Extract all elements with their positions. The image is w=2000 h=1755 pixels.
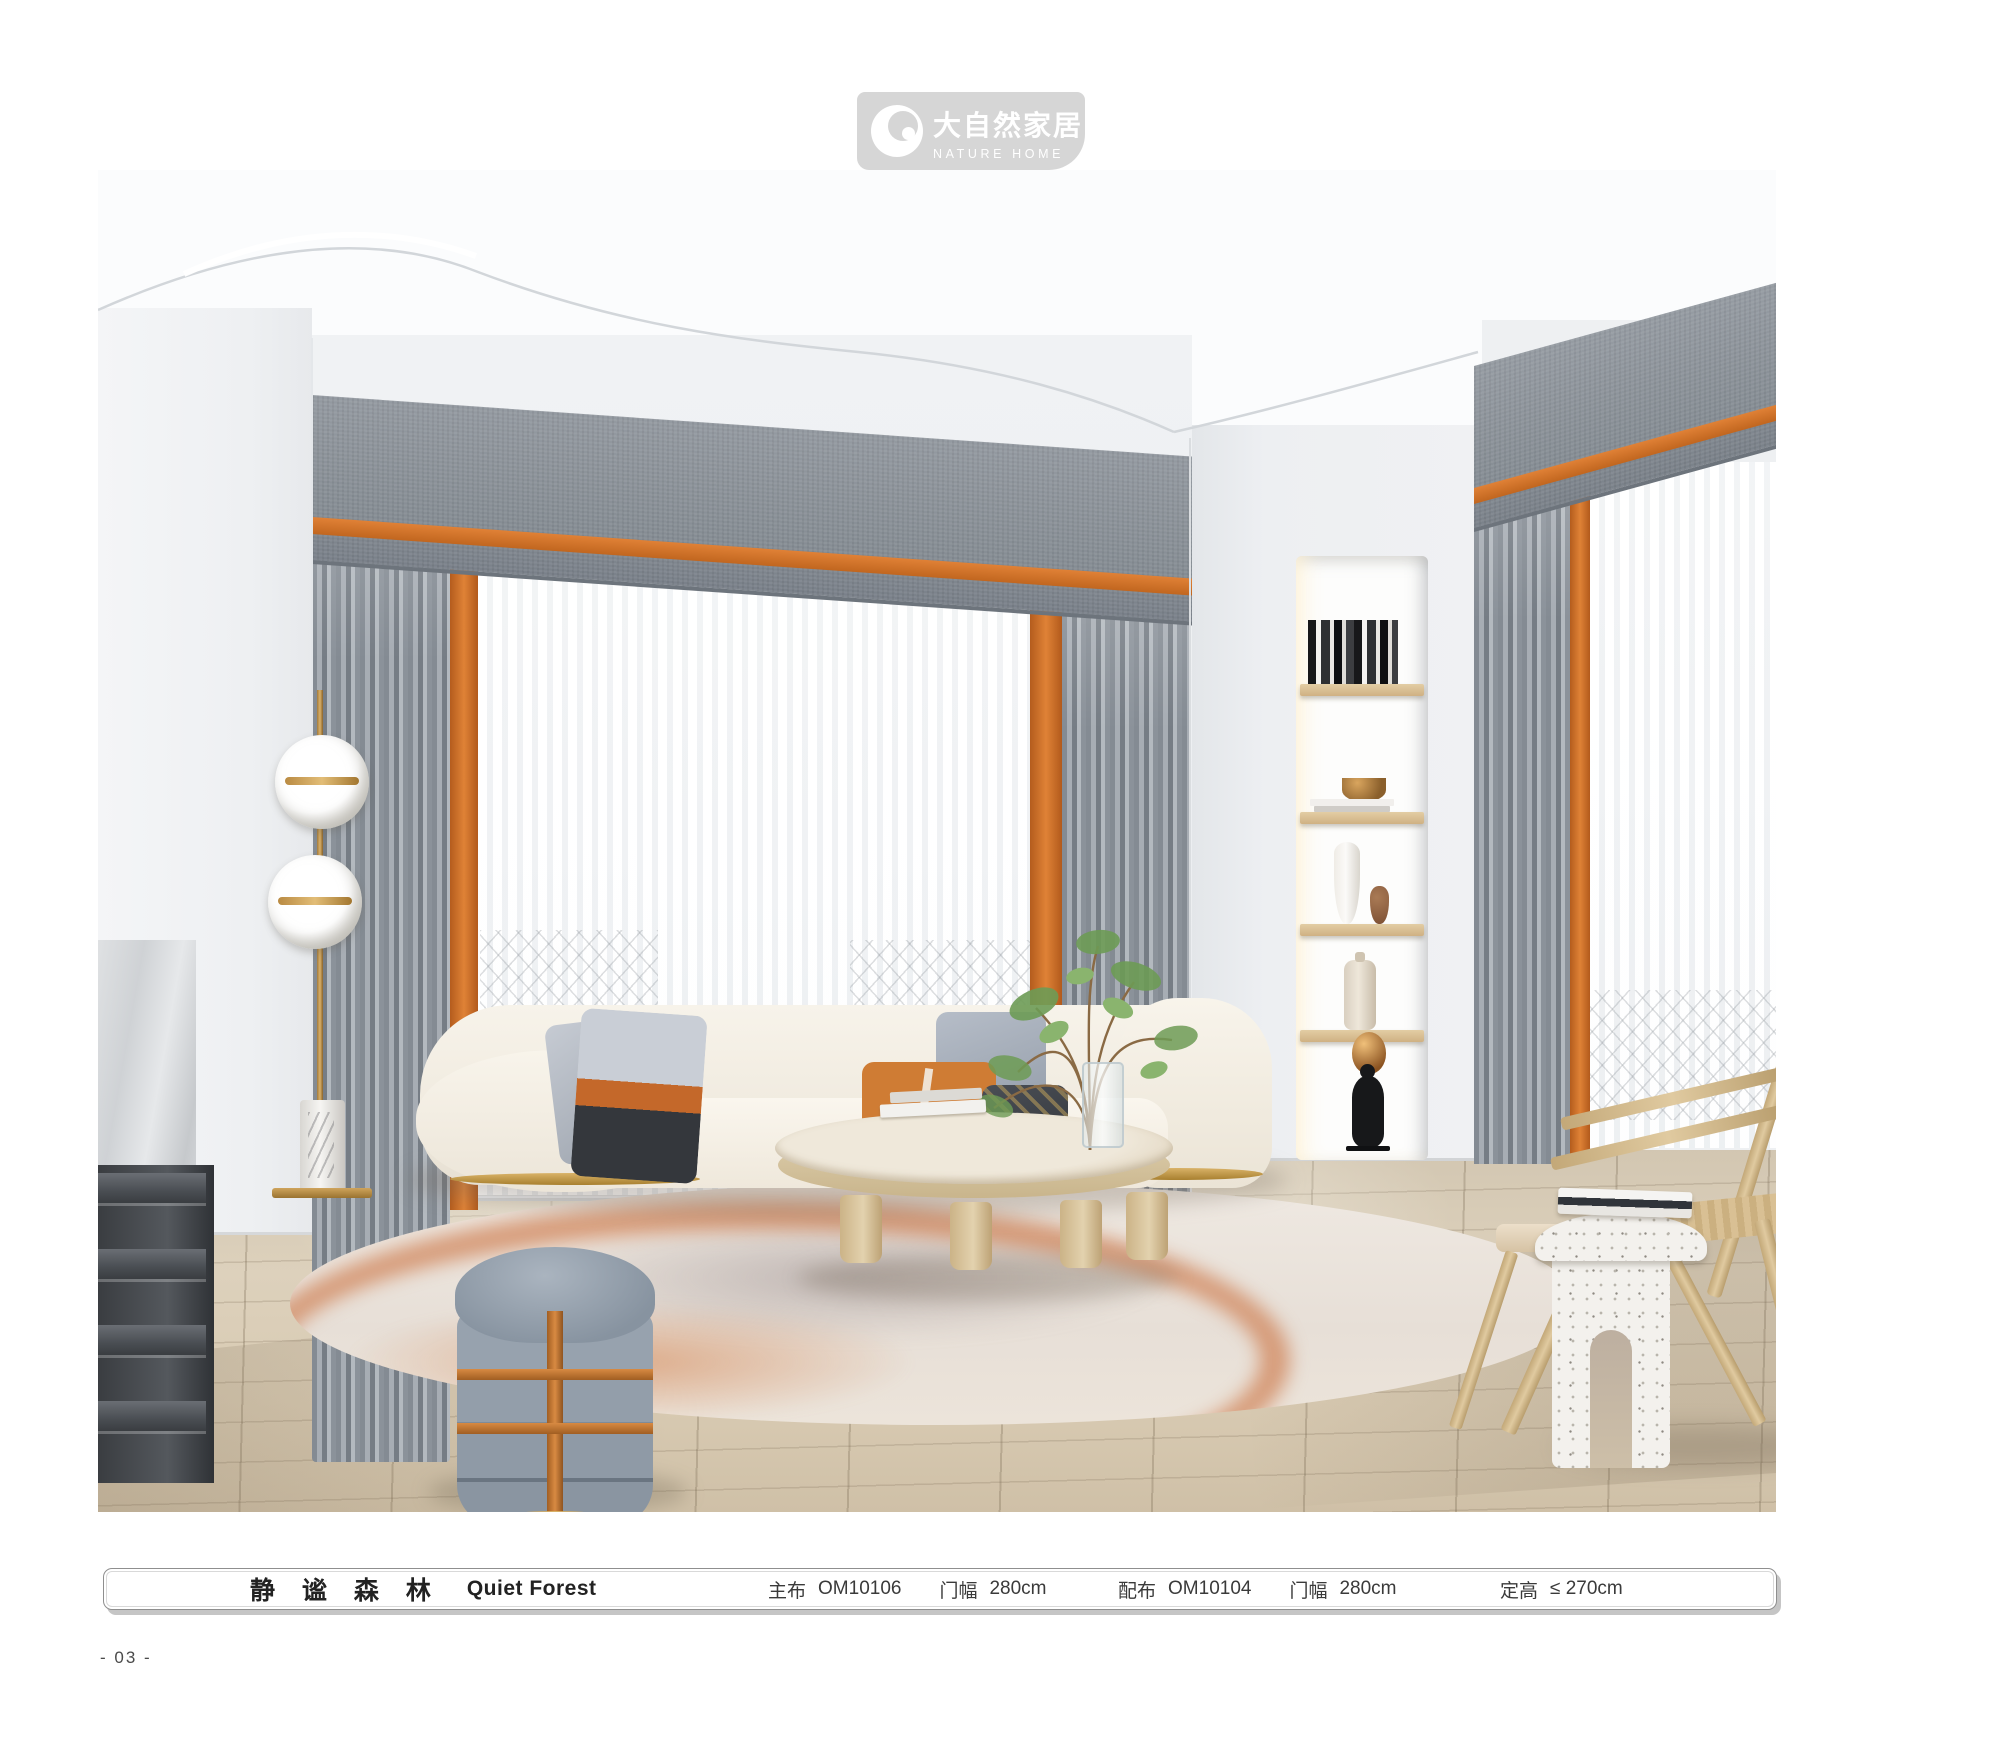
logo-text: 大自然家居 NATURE HOME — [933, 104, 1083, 161]
spec-value: ≤ 270cm — [1550, 1578, 1623, 1600]
product-info-bar: 静 谧 森 林 Quiet Forest 主布 OM10106 门幅 280cm… — [103, 1568, 1777, 1610]
series-name-en: Quiet Forest — [467, 1577, 597, 1601]
console-slab — [98, 1401, 206, 1431]
recessed-shelf-niche — [1296, 556, 1428, 1160]
spec-label: 定高 — [1500, 1576, 1538, 1603]
spec-value: OM10104 — [1168, 1578, 1251, 1600]
main-fabric-spec: 主布 OM10106 门幅 280cm — [768, 1569, 1047, 1609]
lying-book — [1310, 799, 1394, 806]
table-leg — [1126, 1192, 1168, 1260]
pouf-orange-strap — [457, 1423, 653, 1434]
showroom-photo — [98, 170, 1776, 1512]
logo-inner-leaf — [902, 127, 915, 140]
terrazzo-table-arch-cutout — [1590, 1330, 1632, 1468]
table-leg — [1060, 1200, 1102, 1268]
logo-name-zh: 大自然家居 — [933, 104, 1083, 144]
pouf-orange-strap — [457, 1369, 653, 1380]
beige-vase — [1344, 960, 1376, 1030]
fixed-height-spec: 定高 ≤ 270cm — [1500, 1569, 1623, 1609]
table-leg — [950, 1202, 992, 1270]
series-title: 静 谧 森 林 Quiet Forest — [250, 1569, 597, 1609]
brown-vase — [1370, 886, 1389, 924]
companion-fabric-spec: 配布 OM10104 门幅 280cm — [1118, 1569, 1397, 1609]
gray-pouf — [455, 1247, 655, 1495]
catalog-page: 大自然家居 NATURE HOME — [0, 0, 2000, 1755]
spec-value: OM10106 — [818, 1578, 901, 1600]
crescent-circle-icon — [871, 105, 923, 157]
spec-value: 280cm — [989, 1578, 1046, 1600]
console-slab — [98, 1325, 206, 1355]
shelf-books — [1308, 620, 1398, 684]
spec-label: 门幅 — [1289, 1576, 1327, 1603]
magazines-stack — [1558, 1188, 1693, 1219]
wood-shelf — [1300, 684, 1424, 696]
pouf-orange-strap — [547, 1311, 563, 1512]
wood-shelf — [1300, 812, 1424, 824]
floor-lamp-marble-base — [300, 1100, 345, 1192]
floor-lamp-marble-disc — [275, 735, 369, 829]
floor-lamp-base-plate — [272, 1188, 372, 1198]
console-slab — [98, 1249, 206, 1279]
lying-book — [1314, 806, 1390, 812]
logo-name-en: NATURE HOME — [933, 147, 1083, 161]
table-leg — [840, 1195, 882, 1263]
right-curtain-orange-trim — [1570, 492, 1590, 1154]
nature-home-logo: 大自然家居 NATURE HOME — [857, 92, 1085, 170]
spec-label: 主布 — [768, 1576, 806, 1603]
series-name-zh: 静 谧 森 林 — [250, 1571, 441, 1607]
black-figure-sculpture — [1352, 1076, 1384, 1148]
right-curtain-gray-panel — [1474, 500, 1570, 1164]
spec-label: 门幅 — [939, 1576, 977, 1603]
wood-shelf — [1300, 924, 1424, 936]
dark-marble-console — [98, 1165, 214, 1483]
pillow-orange-band — [570, 1008, 707, 1184]
console-slab — [98, 1173, 206, 1203]
spec-value: 280cm — [1339, 1578, 1396, 1600]
spec-label: 配布 — [1118, 1576, 1156, 1603]
page-number: - 03 - — [100, 1648, 152, 1668]
white-vase — [1334, 842, 1360, 924]
glass-vase — [1082, 1062, 1124, 1148]
floor-lamp-marble-disc — [268, 855, 362, 949]
